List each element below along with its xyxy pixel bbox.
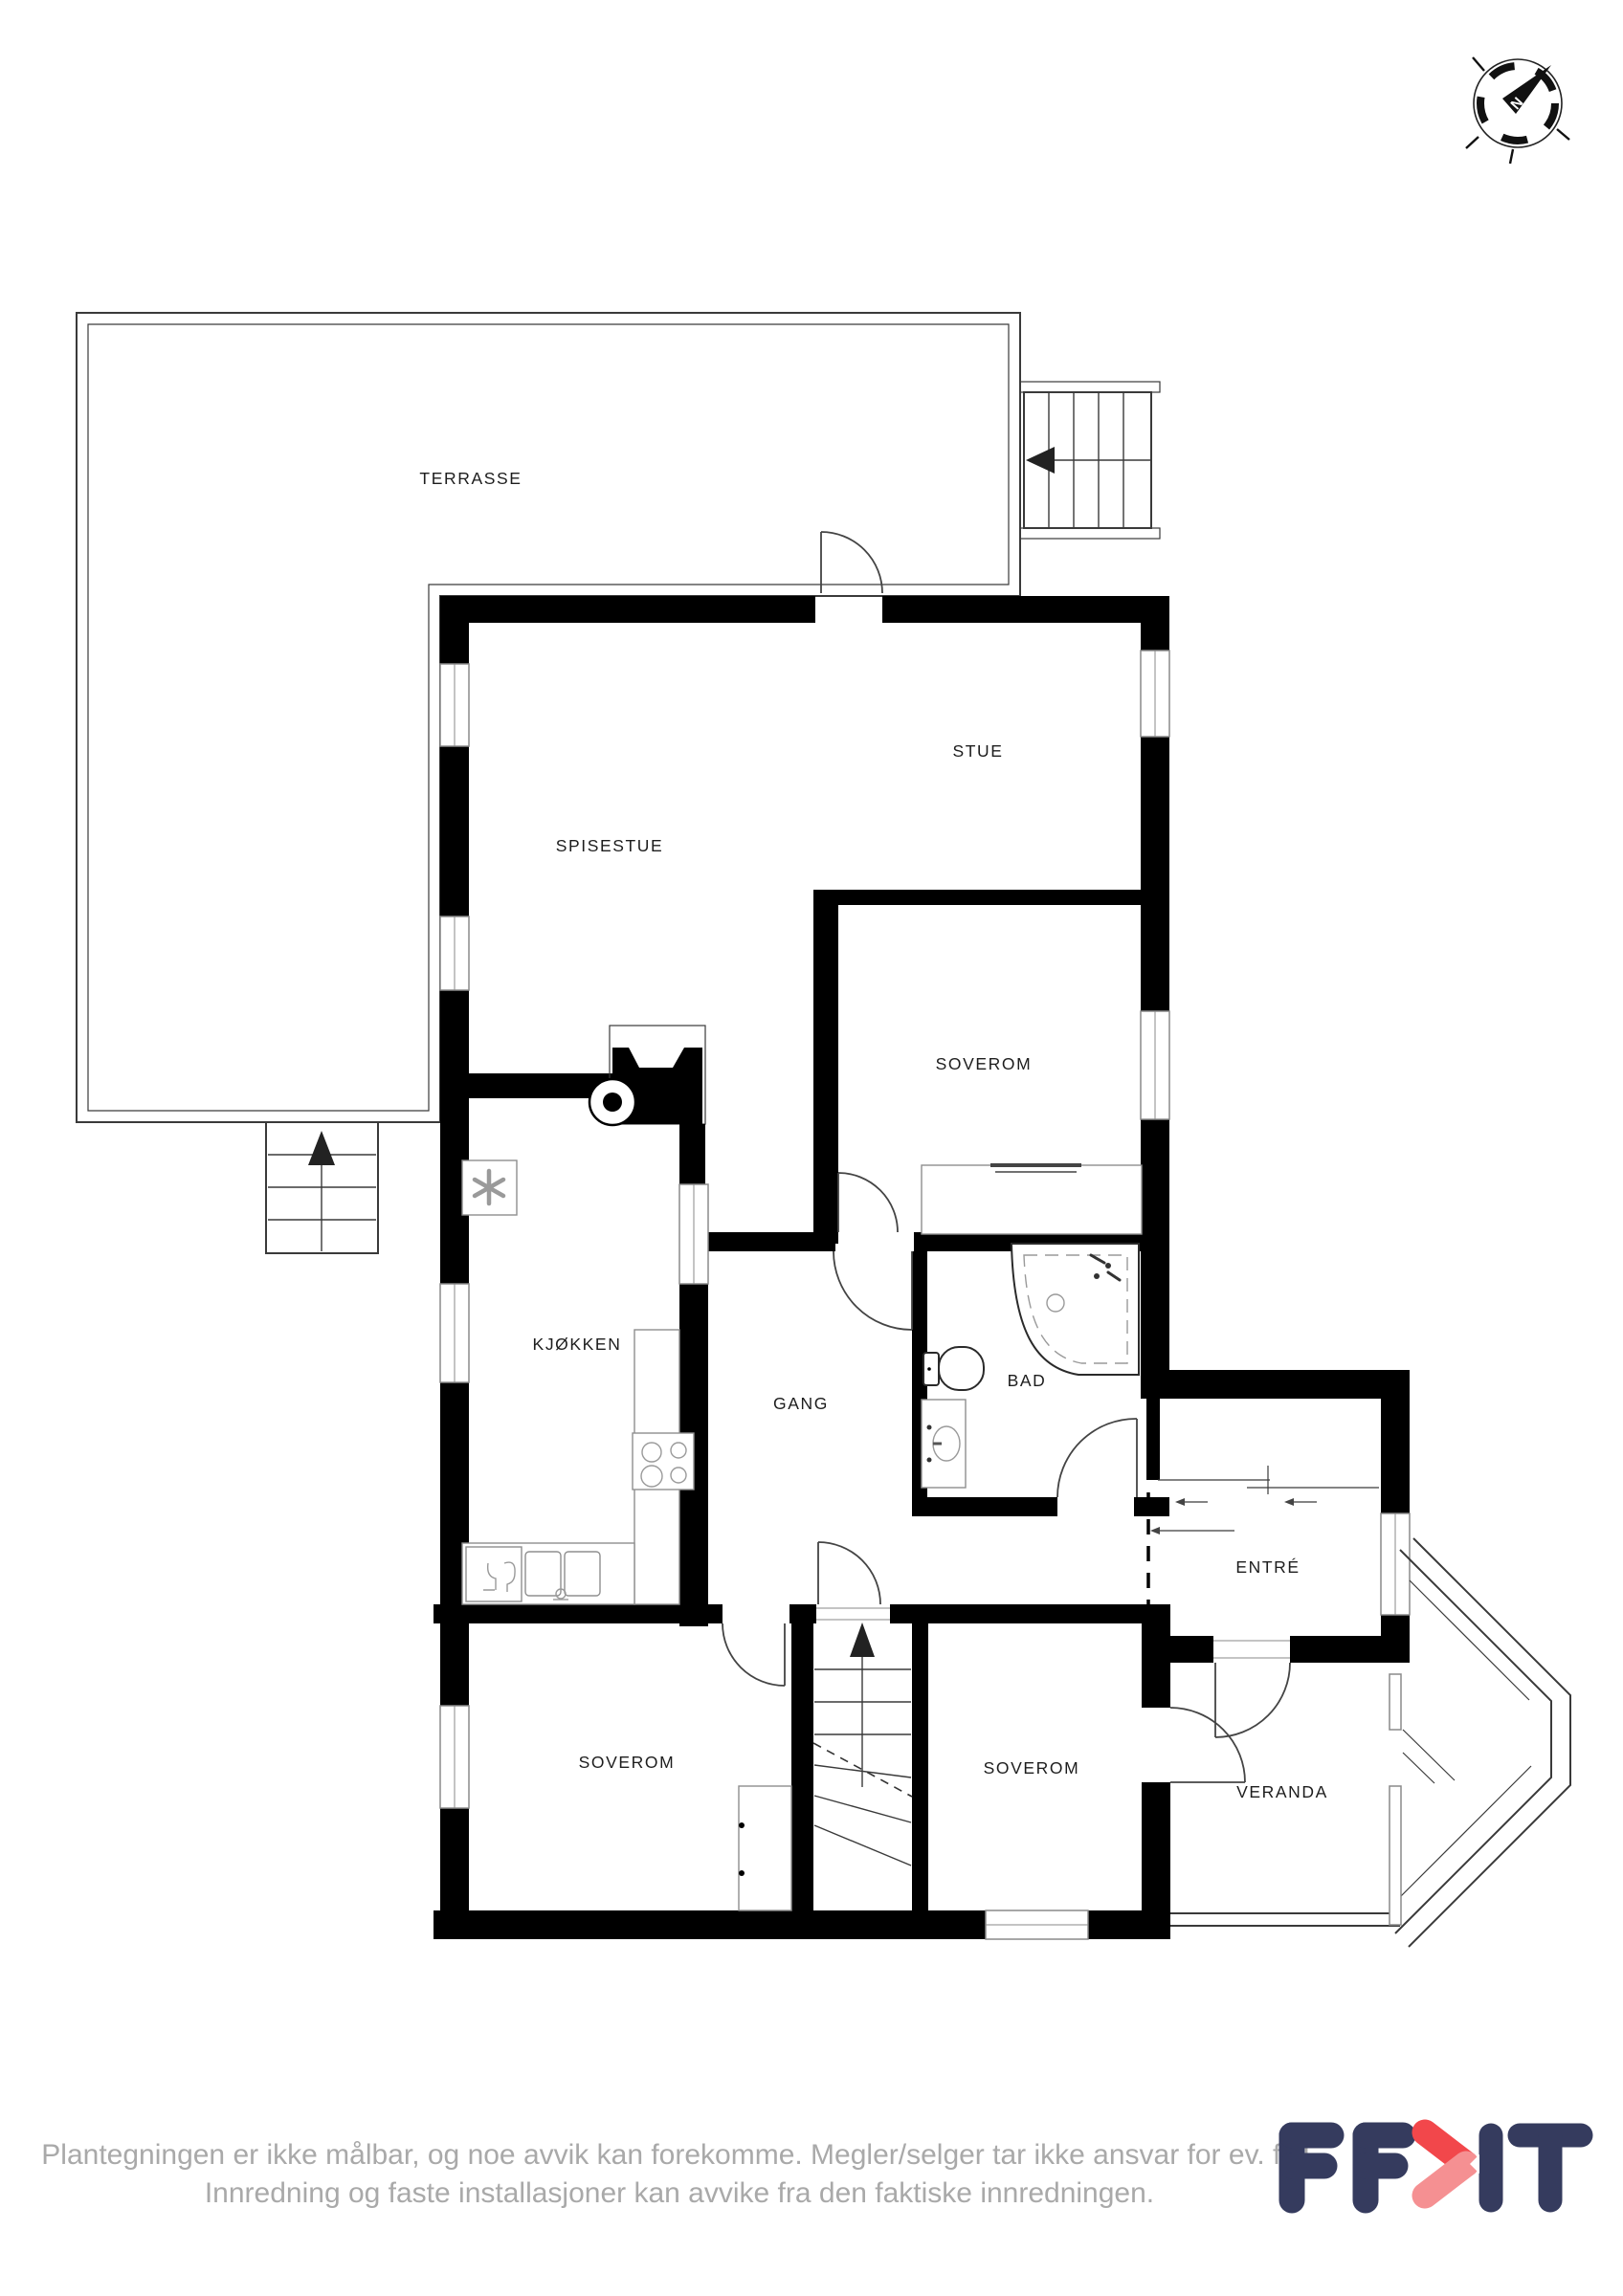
room-label-soverom-mid: SOVEROM [936,1054,1033,1073]
door-entre [1213,1641,1290,1737]
room-label-gang: GANG [773,1394,829,1413]
window [440,1706,469,1808]
room-label-soverom-right: SOVEROM [984,1758,1080,1777]
terrace-outline [77,313,1020,1122]
room-label-stue: STUE [952,741,1003,761]
interior-staircase [813,1623,912,1865]
door-soverom-left [723,1623,785,1686]
corner-bathtub-icon [1012,1244,1139,1375]
stairs-direction-arrow [308,1131,335,1165]
toilet-icon [923,1347,984,1390]
window [679,1184,708,1284]
door-soverom-mid [838,1173,898,1232]
footer: Plantegningen er ikke målbar, og noe avv… [41,2132,1581,2209]
logo-chevron-icon [1425,2132,1466,2196]
floor-plan-page: N TERRASSE STUE SPISESTUE SOVEROM KJØKKE… [0,0,1623,2296]
door-veranda [1170,1708,1245,1782]
door-gang-north [834,1251,912,1330]
efkt-logo [1292,2132,1581,2200]
room-label-veranda: VERANDA [1236,1782,1328,1801]
window [440,664,469,746]
disclaimer-line-1: Plantegningen er ikke målbar, og noe avv… [41,2139,1317,2171]
window [1141,651,1169,737]
dishwasher-icon [466,1547,522,1601]
disclaimer-line-2: Innredning og faste installasjoner kan a… [205,2177,1154,2209]
veranda-railing [1170,1538,1570,1947]
window [440,916,469,990]
door-bad [1057,1419,1137,1497]
doors [723,532,1290,1782]
compass-icon: N [1466,57,1569,164]
room-label-terrasse: TERRASSE [419,469,522,488]
room-label-entre: ENTRÉ [1235,1557,1300,1577]
room-label-spisestue: SPISESTUE [556,836,664,855]
terrace-stairs-upper [1020,382,1160,539]
stairs-direction-arrow [1026,447,1055,474]
wardrobe-icon [922,1165,1142,1234]
room-label-soverom-left: SOVEROM [579,1753,676,1772]
window [986,1910,1088,1939]
wood-stove-icon [589,1079,635,1125]
bathroom-sink-icon [922,1400,966,1488]
bathroom-fixtures [922,1244,1139,1488]
floor-plan-drawing: N TERRASSE STUE SPISESTUE SOVEROM KJØKKE… [0,0,1623,2296]
cooktop-icon [633,1433,694,1490]
room-label-kjokken: KJØKKEN [533,1335,622,1354]
window [1141,1011,1169,1119]
window [1381,1513,1410,1615]
kitchen-fixtures [462,1160,694,1604]
window [440,1284,469,1382]
entre-closet [1148,1466,1379,1617]
stairs-direction-arrow [850,1623,875,1657]
fridge-icon [462,1160,517,1215]
door-stairs [816,1542,890,1620]
terrace-stairs-lower [266,1122,378,1253]
wardrobe-icon [739,1786,791,1910]
room-label-bad: BAD [1008,1371,1047,1390]
